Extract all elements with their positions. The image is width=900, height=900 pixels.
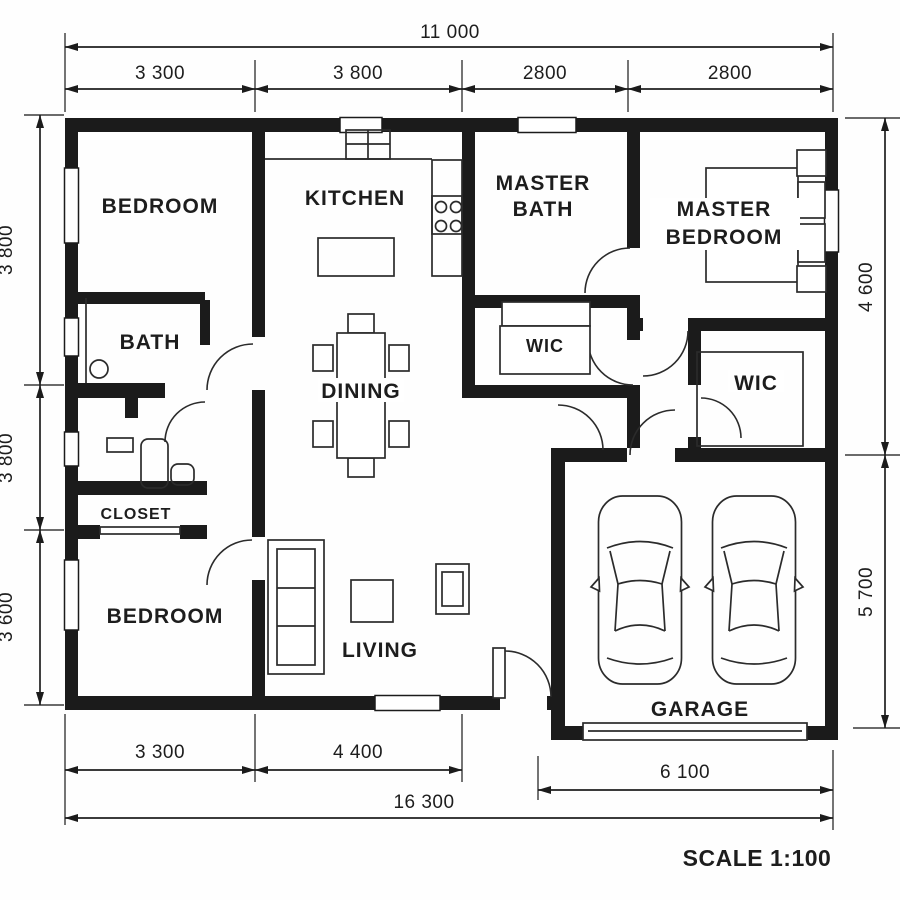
dim-bottom-total: 16 300 — [393, 792, 454, 813]
burner — [436, 221, 447, 232]
dim-top-4: 2800 — [708, 63, 752, 84]
dim-bottom-2: 4 400 — [333, 742, 383, 763]
dim-top-2: 3 800 — [333, 63, 383, 84]
label-wic-master: WIC — [526, 336, 564, 356]
pillow — [798, 182, 825, 218]
label-master-bath-2: BATH — [513, 198, 574, 221]
burner — [436, 202, 447, 213]
front-door-leaf — [493, 648, 505, 698]
window-utility — [65, 432, 79, 466]
car-icon — [591, 496, 689, 684]
floor-plan-page: BEDROOM KITCHEN MASTER BATH MASTER BEDRO… — [0, 0, 900, 900]
window-living — [375, 696, 440, 711]
kitchen-counter-right — [432, 160, 462, 276]
dining-chair — [313, 421, 333, 447]
floor-plan-drawing: BEDROOM KITCHEN MASTER BATH MASTER BEDRO… — [0, 0, 900, 900]
door-arc-master-bath — [585, 248, 630, 293]
label-garage: GARAGE — [651, 698, 749, 721]
desk — [107, 438, 133, 452]
burner — [451, 221, 462, 232]
dim-left-3: 3 600 — [0, 592, 17, 642]
label-bedroom-top: BEDROOM — [102, 195, 219, 218]
dining-chair — [313, 345, 333, 371]
burner — [451, 202, 462, 213]
nightstand — [797, 150, 826, 176]
utility-furniture — [107, 438, 194, 488]
nightstand — [797, 266, 826, 292]
wardrobe-shelf — [502, 302, 590, 326]
toilet — [90, 360, 108, 378]
dim-garage-width: 6 100 — [660, 762, 710, 783]
door-arc-front-entry — [505, 651, 551, 697]
dining-chair — [348, 458, 374, 477]
dim-top-3: 2800 — [523, 63, 567, 84]
dim-right-1: 4 600 — [856, 262, 877, 312]
door-arc-hall-bedroom-top — [207, 344, 253, 390]
dim-left-2: 3 800 — [0, 433, 17, 483]
door-arc-wic-master — [588, 340, 633, 385]
car-icon — [705, 496, 803, 684]
dim-bottom-1: 3 300 — [135, 742, 185, 763]
coffee-table — [351, 580, 393, 622]
dining-chair — [389, 345, 409, 371]
window-master-bath — [518, 118, 576, 133]
closet-door — [100, 527, 180, 534]
scale-label: SCALE 1:100 — [683, 845, 832, 871]
dim-right-2: 5 700 — [856, 567, 877, 617]
label-master-bath-1: MASTER — [496, 172, 591, 195]
dim-top-total: 11 000 — [420, 22, 480, 43]
dining-chair — [348, 314, 374, 333]
dim-top-1: 3 300 — [135, 63, 185, 84]
window-master-bedroom — [825, 190, 839, 252]
label-master-bedroom-1: MASTER — [677, 198, 772, 221]
door-arc-bedroom-bottom — [207, 540, 252, 585]
kitchen-island — [318, 238, 394, 276]
label-living: LIVING — [342, 639, 418, 662]
door-arc-master-bedroom — [643, 331, 688, 376]
window-bedroom-top — [65, 168, 79, 243]
label-closet: CLOSET — [101, 506, 172, 523]
window-bedroom-bottom — [65, 560, 79, 630]
dim-left-1: 3 800 — [0, 225, 17, 275]
dining-chair — [389, 421, 409, 447]
bath-fixtures — [86, 298, 108, 383]
label-kitchen: KITCHEN — [305, 187, 405, 210]
door-arc-utility — [165, 402, 205, 442]
label-master-bedroom-2: BEDROOM — [666, 226, 783, 249]
door-arc-hallway — [558, 405, 603, 450]
label-bath: BATH — [120, 331, 181, 354]
door-arc-wic-right — [701, 398, 741, 438]
label-wic-right: WIC — [734, 372, 778, 395]
lounge-chair — [141, 439, 168, 488]
window-bath — [65, 318, 79, 356]
label-bedroom-bottom: BEDROOM — [107, 605, 224, 628]
label-dining: DINING — [321, 380, 401, 403]
pillow — [798, 224, 825, 262]
